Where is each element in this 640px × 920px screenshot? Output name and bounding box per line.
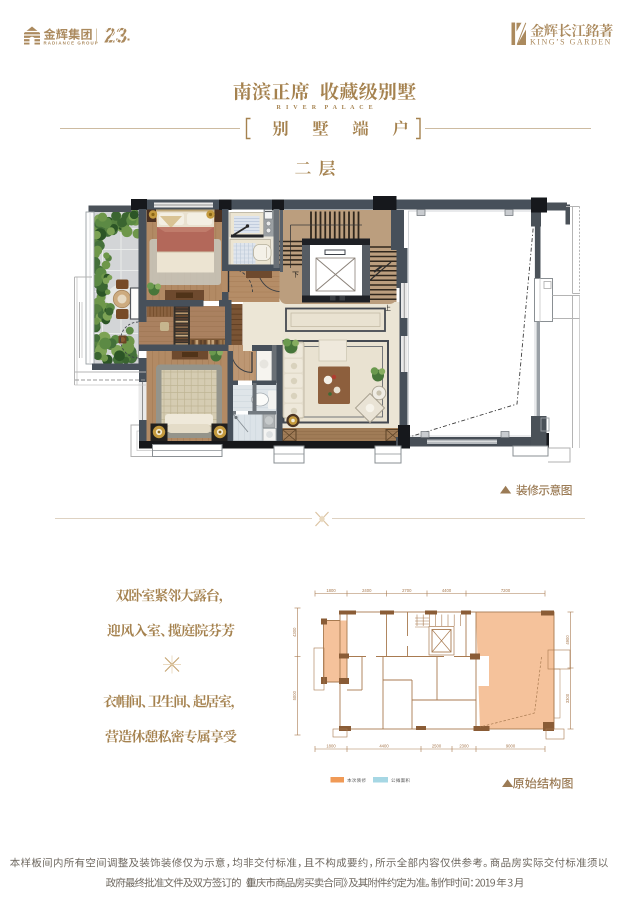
svg-text:4400: 4400 <box>379 744 389 749</box>
svg-text:4300: 4300 <box>292 627 297 637</box>
svg-text:5000: 5000 <box>292 690 297 700</box>
svg-text:1800: 1800 <box>326 744 336 749</box>
svg-text:3300: 3300 <box>565 693 570 703</box>
svg-text:RADIANCE GROUP: RADIANCE GROUP <box>44 40 99 45</box>
svg-text:R I V E R P A L A C E: R I V E R P A L A C E <box>277 105 375 111</box>
svg-text:7200: 7200 <box>501 588 511 593</box>
svg-text:KING’S GARDEN: KING’S GARDEN <box>530 38 612 47</box>
svg-text:2400: 2400 <box>362 588 372 593</box>
svg-text:2300: 2300 <box>459 744 469 749</box>
svg-text:4900: 4900 <box>565 635 570 645</box>
svg-text:1800: 1800 <box>326 588 336 593</box>
svg-text:2500: 2500 <box>432 744 442 749</box>
svg-text:2700: 2700 <box>402 588 412 593</box>
svg-text:4400: 4400 <box>442 588 452 593</box>
svg-text:9000: 9000 <box>506 744 516 749</box>
